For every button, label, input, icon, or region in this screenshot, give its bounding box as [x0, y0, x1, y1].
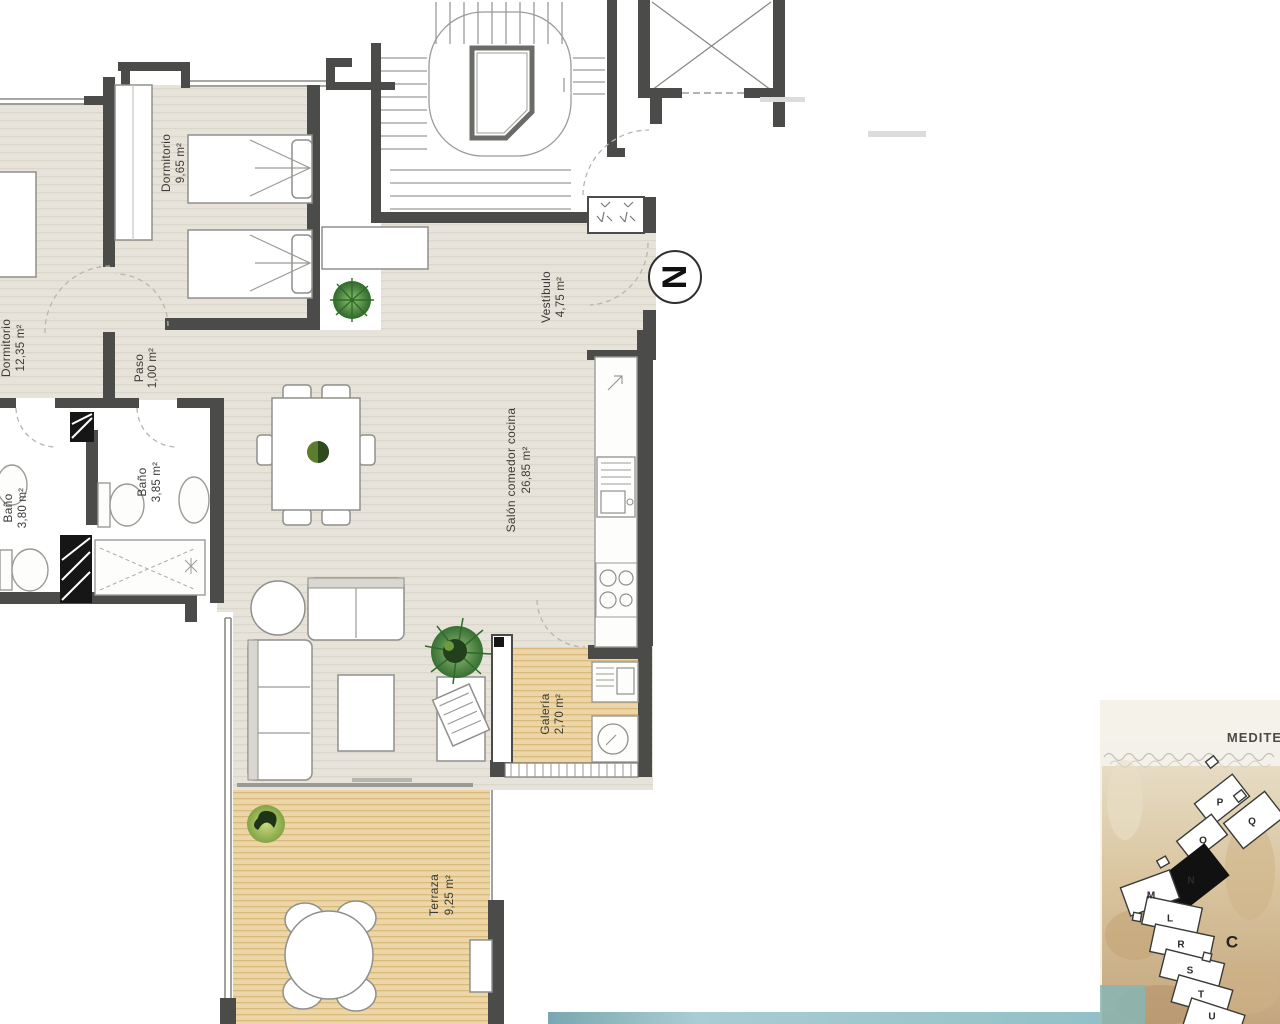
round-side-table: [251, 581, 305, 635]
toilet-tank: [0, 550, 12, 590]
room-label-dormitorio-1: Dormitorio: [159, 134, 173, 192]
room-label-salon: Salón comedor cocina: [504, 408, 518, 533]
galeria-sink-unit: [592, 662, 638, 702]
block-letter: M: [1147, 891, 1155, 902]
exterior-wall: [181, 62, 190, 88]
room-area-dormitorio-1: 9,65 m²: [175, 143, 187, 183]
galeria-wall: [638, 645, 652, 777]
galeria-pier: [492, 635, 512, 763]
stair-treads-top: [436, 2, 562, 44]
lounger: [433, 677, 490, 761]
partition-wall: [165, 318, 320, 330]
sand-patch: [1107, 760, 1143, 840]
stair-core: [472, 48, 532, 138]
chair: [359, 435, 375, 465]
terraza-wall: [220, 998, 236, 1024]
terraza-table-set: [283, 901, 376, 1011]
planter: [470, 940, 492, 992]
galeria-pier-post: [494, 637, 504, 647]
stair-treads-right: [573, 58, 605, 94]
elevator-wall-bottom-right: [744, 88, 785, 98]
floor-plan-page: Dormitorio 9,65 m² Dormitorio 12,35 m² P…: [0, 0, 1280, 1024]
shower: [95, 540, 205, 595]
room-label-vestibulo: Vestíbulo: [539, 271, 553, 323]
room-label-paso: Paso: [132, 354, 146, 383]
room-label-galeria: Galería: [538, 693, 552, 734]
bath-wall: [86, 430, 98, 525]
corridor-wall: [607, 0, 617, 157]
block-letter: U: [1208, 1012, 1215, 1023]
floor-plan-drawing: Dormitorio 9,65 m² Dormitorio 12,35 m² P…: [0, 0, 1280, 1024]
partition-wall: [103, 77, 115, 267]
toilet-tank: [98, 483, 110, 527]
block-letter: O: [1199, 836, 1207, 847]
elevator-wall-left: [638, 0, 650, 98]
stair-wall: [371, 43, 381, 223]
room-area-bano-2: 3,85 m²: [151, 462, 163, 502]
building-annex: [1132, 912, 1141, 921]
room-label-terraza: Terraza: [427, 874, 441, 916]
room-area-galeria: 2,70 m²: [554, 694, 566, 734]
bed-partial: [0, 172, 36, 277]
partition-wall: [103, 332, 115, 400]
sliding-door-track: [237, 783, 473, 787]
room-label-dormitorio-2: Dormitorio: [0, 319, 13, 377]
chair: [257, 435, 273, 465]
sink: [179, 477, 209, 523]
bath-wall: [0, 398, 16, 408]
door-arc-bano-2: [137, 408, 177, 447]
stair-wall: [371, 212, 588, 223]
bath-wall: [55, 398, 139, 408]
paso-floor: [103, 330, 653, 400]
block-letter: L: [1167, 914, 1173, 925]
sofa-backrest: [308, 578, 404, 588]
toilet: [12, 549, 48, 591]
wall-shadow: [868, 131, 926, 137]
wall-shadow: [760, 97, 805, 102]
exterior-wall: [333, 82, 395, 90]
terraza-railing: [225, 618, 231, 1000]
room-label-bano-1: Baño: [1, 493, 15, 522]
corridor-wall-stub: [607, 148, 625, 157]
elevator-wall-bottom-left: [638, 88, 682, 98]
stair-treads-left: [381, 58, 427, 149]
block-letter: S: [1187, 966, 1194, 977]
sliding-door-leaf: [352, 778, 412, 782]
coffee-table: [338, 675, 394, 751]
plant-terraza: [247, 805, 285, 843]
terraza-table: [285, 911, 373, 999]
exterior-wall: [118, 62, 190, 71]
closet: [322, 227, 428, 269]
washing-machine: [592, 716, 638, 762]
block-letter: Q: [1248, 817, 1256, 828]
louver-window: [505, 763, 638, 777]
area-letter: C: [1226, 933, 1238, 952]
kitchen-wall: [637, 330, 653, 646]
block-letter: R: [1177, 940, 1185, 951]
window-dormitorio-2: [0, 99, 84, 104]
room-area-dormitorio-2: 12,35 m²: [15, 325, 27, 372]
block-letter-highlighted: N: [1187, 876, 1194, 887]
block-letter: T: [1198, 990, 1204, 1001]
room-area-bano-1: 3,80 m²: [17, 488, 29, 528]
room-area-vestibulo: 4,75 m²: [555, 277, 567, 317]
kitchen-sink: [597, 457, 635, 517]
duct-shaft: [70, 412, 94, 442]
bath-wall: [210, 398, 224, 603]
door-arc-bano-1: [16, 408, 55, 447]
entry-planter: [588, 197, 644, 233]
plant: [330, 278, 374, 322]
room-area-paso: 1,00 m²: [147, 348, 159, 388]
room-area-terraza: 9,25 m²: [444, 875, 456, 915]
elevator-wall-right: [773, 0, 785, 127]
room-area-salon: 26,85 m²: [521, 447, 533, 494]
room-label-bano-2: Baño: [135, 467, 149, 496]
site-map: MEDITE P Q O N M L R S: [1100, 700, 1280, 1024]
stair-treads-bottom: [390, 170, 571, 209]
pool-strip: [548, 1012, 1140, 1024]
building-annex: [1202, 952, 1212, 962]
elevator-shaft: [607, 0, 926, 157]
sea-label: MEDITE: [1227, 730, 1280, 745]
bed-single: [188, 230, 312, 298]
north-letter: N: [656, 265, 694, 290]
duct-shaft: [60, 535, 92, 603]
stair-direction-arrow: [556, 92, 571, 107]
kitchen-counter: [595, 357, 637, 647]
chair: [322, 509, 350, 525]
bath-wall: [185, 592, 197, 622]
shore-water: [1100, 985, 1145, 1024]
bed-single: [188, 135, 312, 203]
north-compass: N: [649, 251, 701, 303]
window-dormitorio-1: [190, 81, 326, 86]
elevator-wall-stub: [650, 98, 662, 124]
sofa-backrest: [248, 640, 258, 780]
stairwell: [381, 2, 605, 209]
dining-set: [257, 385, 375, 525]
bottom-photo-strip: [548, 1012, 1140, 1024]
chair: [283, 509, 311, 525]
block-letter: P: [1217, 798, 1224, 809]
